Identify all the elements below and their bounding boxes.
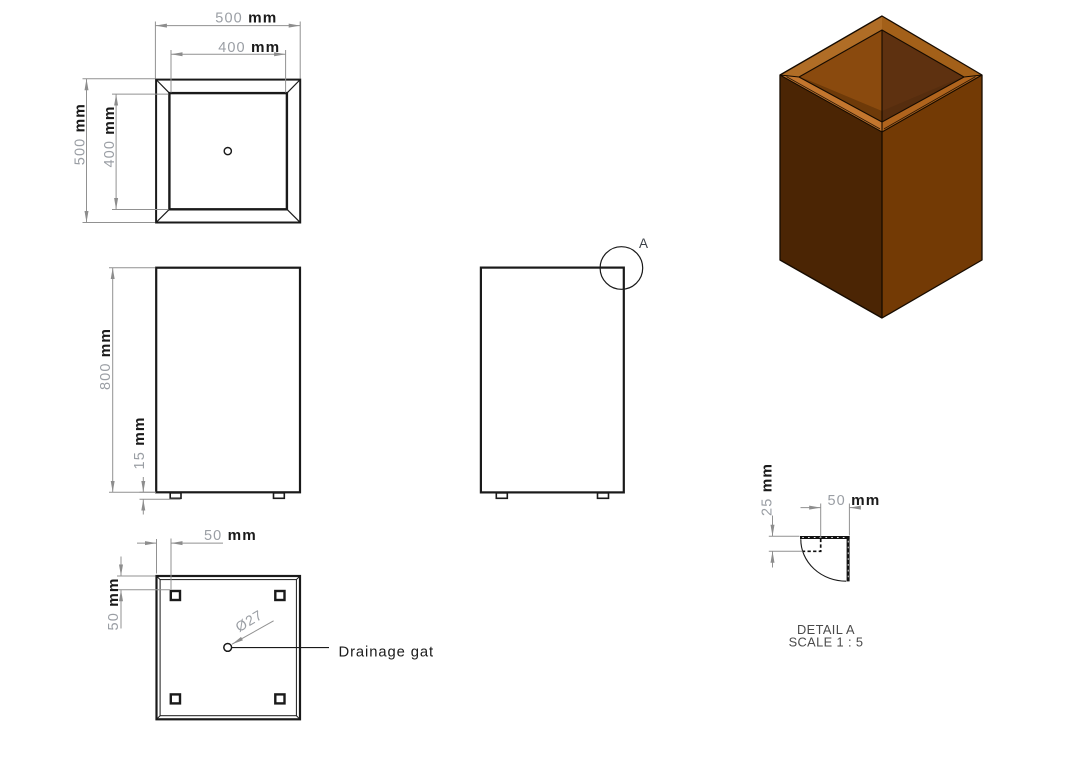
svg-text:400 mm: 400 mm <box>218 39 280 56</box>
svg-text:A: A <box>639 236 648 251</box>
svg-text:SCALE 1 : 5: SCALE 1 : 5 <box>789 635 864 650</box>
svg-text:50 mm: 50 mm <box>204 527 257 544</box>
svg-text:500 mm: 500 mm <box>215 10 277 27</box>
svg-text:50 mm: 50 mm <box>828 492 881 509</box>
svg-text:800 mm: 800 mm <box>97 328 114 390</box>
svg-text:50 mm: 50 mm <box>105 578 122 631</box>
svg-text:25 mm: 25 mm <box>759 463 776 516</box>
svg-text:400 mm: 400 mm <box>101 105 118 167</box>
svg-text:500 mm: 500 mm <box>71 103 88 165</box>
svg-text:Drainage gat: Drainage gat <box>339 645 435 661</box>
svg-text:15 mm: 15 mm <box>131 417 148 470</box>
